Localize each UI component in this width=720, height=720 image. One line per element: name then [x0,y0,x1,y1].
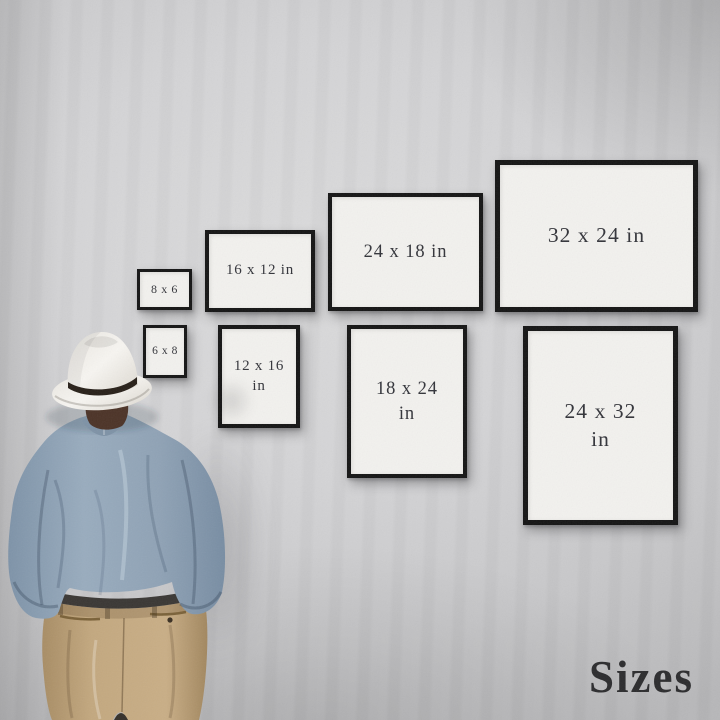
pocket-button [167,617,172,622]
frame-label: 32 x 24 in [548,222,645,250]
frame-8x6: 8 x 6 [137,269,192,310]
frame-label: 18 x 24in [376,377,438,425]
fedora-hat [51,332,153,413]
sizes-caption: Sizes [589,651,694,703]
frame-label: 8 x 6 [151,282,178,298]
frame-size-text: 18 x 24 [376,377,438,401]
frame-label: 24 x 18 in [364,240,448,264]
frame-24x18: 24 x 18 in [328,193,483,311]
frame-size-text: 32 x 24 in [548,222,645,250]
frame-16x12: 16 x 12 in [205,230,315,312]
frame-18x24: 18 x 24in [347,325,467,478]
frame-size-text: in [591,426,610,454]
frame-size-text: 8 x 6 [151,282,178,298]
man-figure [0,320,260,720]
scene: 8 x 6 16 x 12 in 24 x 18 in 32 x 24 in 6… [0,0,720,720]
shirt [8,402,225,619]
frame-32x24: 32 x 24 in [495,160,698,312]
frame-label: 16 x 12 in [226,261,294,281]
frame-size-text: 24 x 32 [564,398,636,426]
frame-24x32: 24 x 32in [523,326,678,525]
frame-size-text: 24 x 18 in [364,240,448,264]
frame-label: 24 x 32in [564,398,636,454]
trousers [42,598,207,720]
frame-size-text: in [399,402,415,426]
frame-size-text: 16 x 12 in [226,261,294,281]
